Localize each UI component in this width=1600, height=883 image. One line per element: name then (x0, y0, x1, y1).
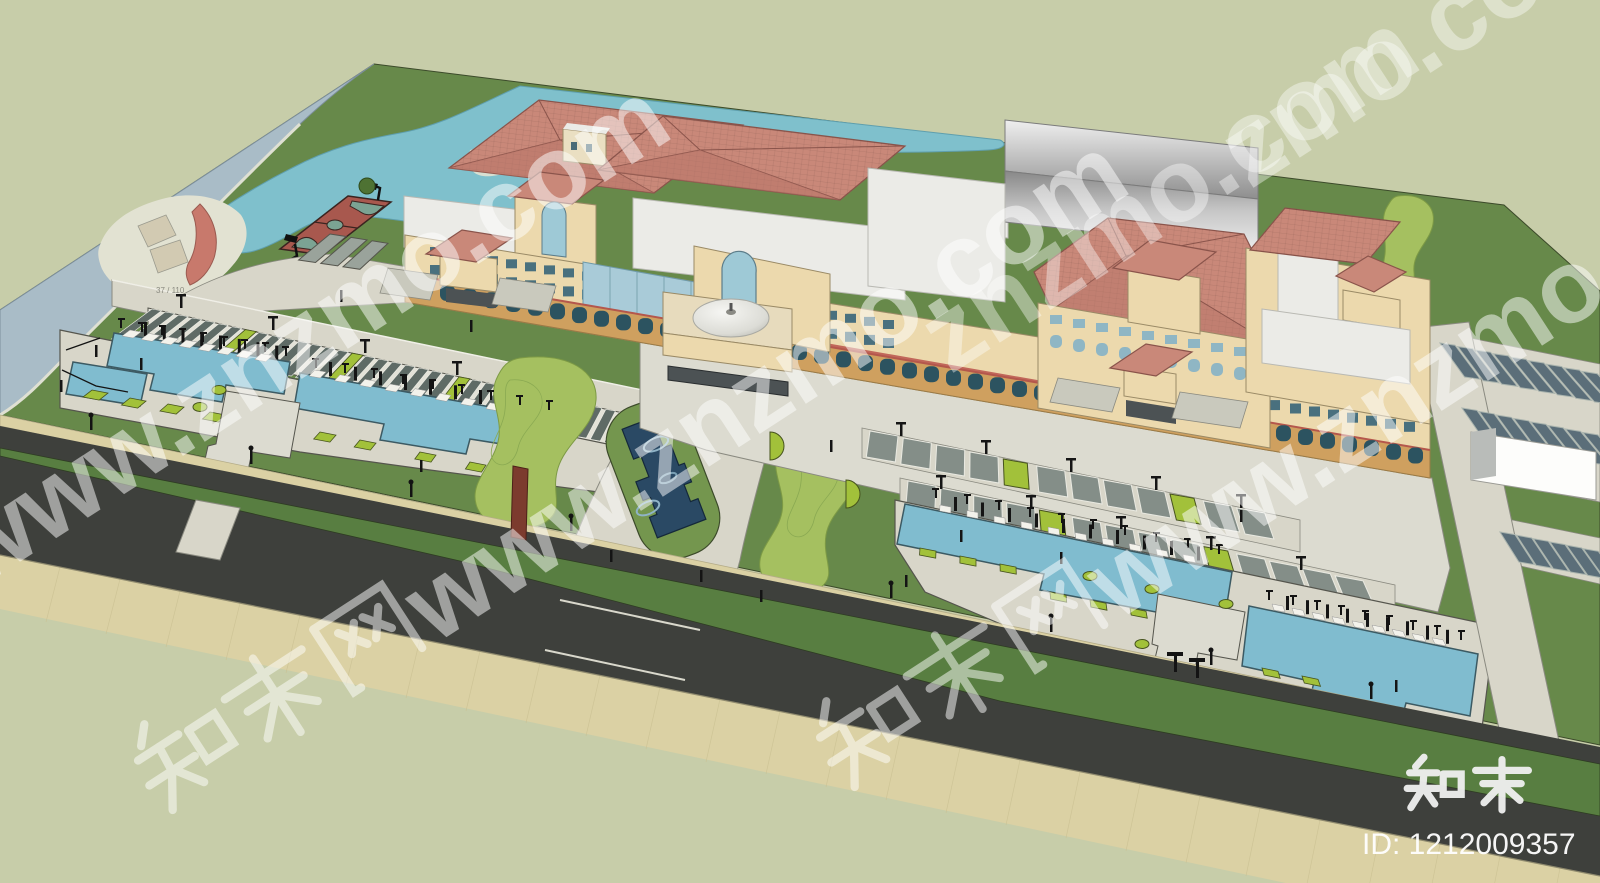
svg-text:ID: 1212009357: ID: 1212009357 (1362, 828, 1576, 861)
svg-text:37 / 110: 37 / 110 (156, 286, 185, 295)
